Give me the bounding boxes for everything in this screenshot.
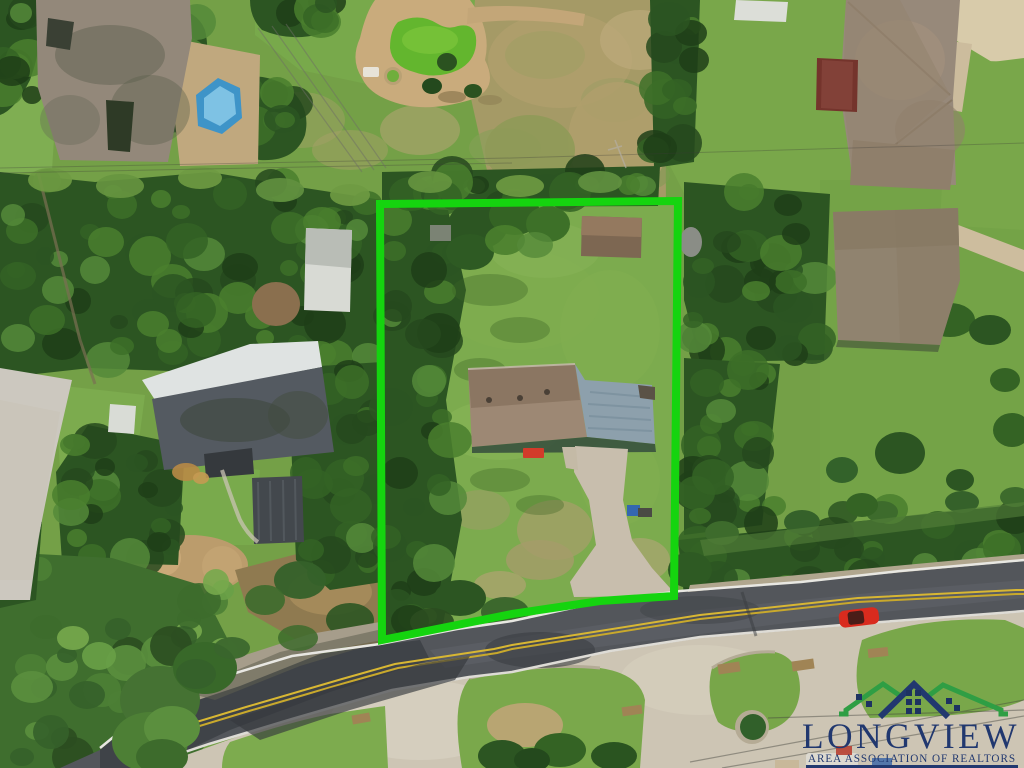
svg-text:AREA ASSOCIATION OF REALTORS: AREA ASSOCIATION OF REALTORS [808,751,1016,765]
svg-text:LONGVIEW: LONGVIEW [802,716,1020,756]
